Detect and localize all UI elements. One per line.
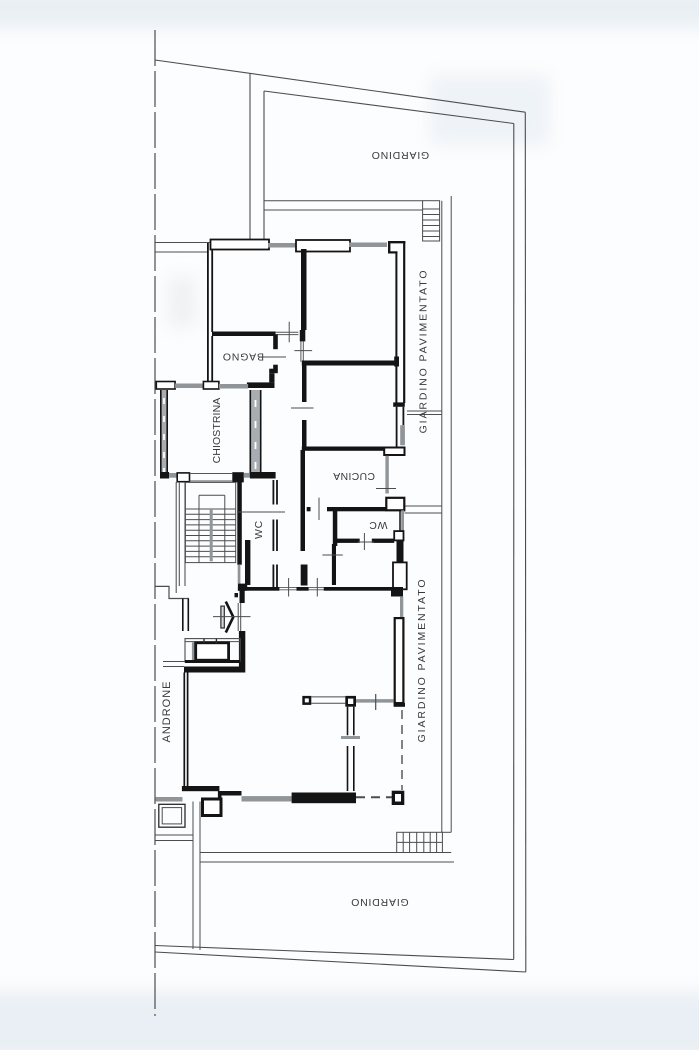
svg-text:CUCINA: CUCINA [333,470,375,482]
svg-text:CHIOSTRINA: CHIOSTRINA [211,398,223,464]
svg-text:GIARDINO: GIARDINO [371,149,429,161]
svg-text:ANDRONE: ANDRONE [161,680,173,742]
svg-text:GIARDINO PAVIMENTATO: GIARDINO PAVIMENTATO [418,269,430,434]
svg-text:WC: WC [253,520,265,539]
svg-text:WC: WC [368,519,387,531]
svg-text:GIARDINO PAVIMENTATO: GIARDINO PAVIMENTATO [416,578,428,743]
svg-text:GIARDINO: GIARDINO [350,896,408,908]
svg-text:BAGNO: BAGNO [222,351,264,363]
